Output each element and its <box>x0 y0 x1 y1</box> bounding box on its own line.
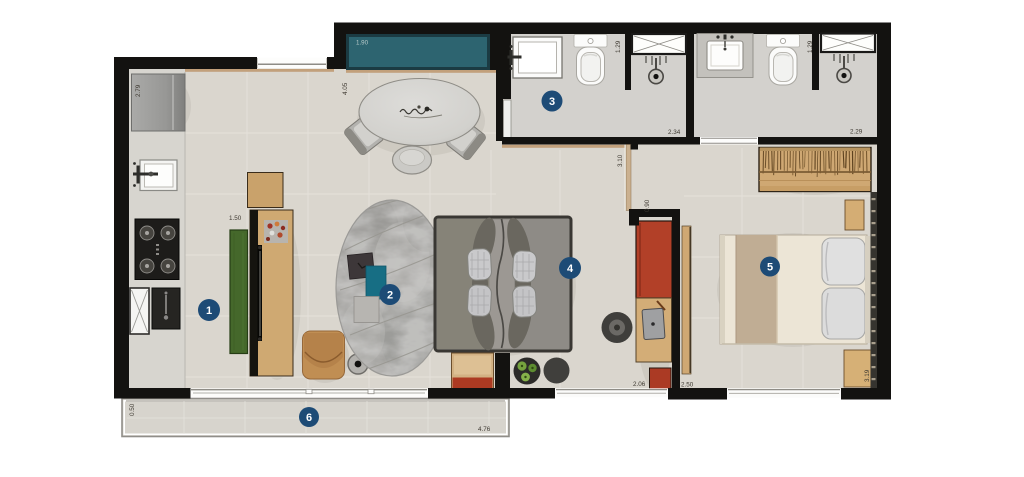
svg-text:1.29: 1.29 <box>615 40 622 53</box>
svg-text:1: 1 <box>206 305 212 317</box>
svg-text:2.06: 2.06 <box>633 381 646 388</box>
svg-text:2.29: 2.29 <box>850 129 863 136</box>
svg-text:2.50: 2.50 <box>681 382 694 389</box>
svg-text:1.90: 1.90 <box>356 40 369 47</box>
svg-text:1.50: 1.50 <box>229 215 242 222</box>
svg-text:6: 6 <box>306 412 312 424</box>
svg-text:3.10: 3.10 <box>617 154 624 167</box>
svg-text:2.79: 2.79 <box>135 84 142 97</box>
svg-text:2.34: 2.34 <box>668 129 681 136</box>
svg-text:2: 2 <box>387 290 393 302</box>
svg-text:3: 3 <box>549 96 555 108</box>
svg-text:0.50: 0.50 <box>129 403 136 416</box>
svg-text:4: 4 <box>567 263 574 275</box>
svg-text:5: 5 <box>767 262 773 274</box>
svg-text:4.76: 4.76 <box>478 426 491 433</box>
svg-text:4.05: 4.05 <box>342 82 349 95</box>
svg-text:0.90: 0.90 <box>644 199 651 212</box>
svg-text:1.29: 1.29 <box>807 40 814 53</box>
svg-text:3.19: 3.19 <box>864 369 871 382</box>
